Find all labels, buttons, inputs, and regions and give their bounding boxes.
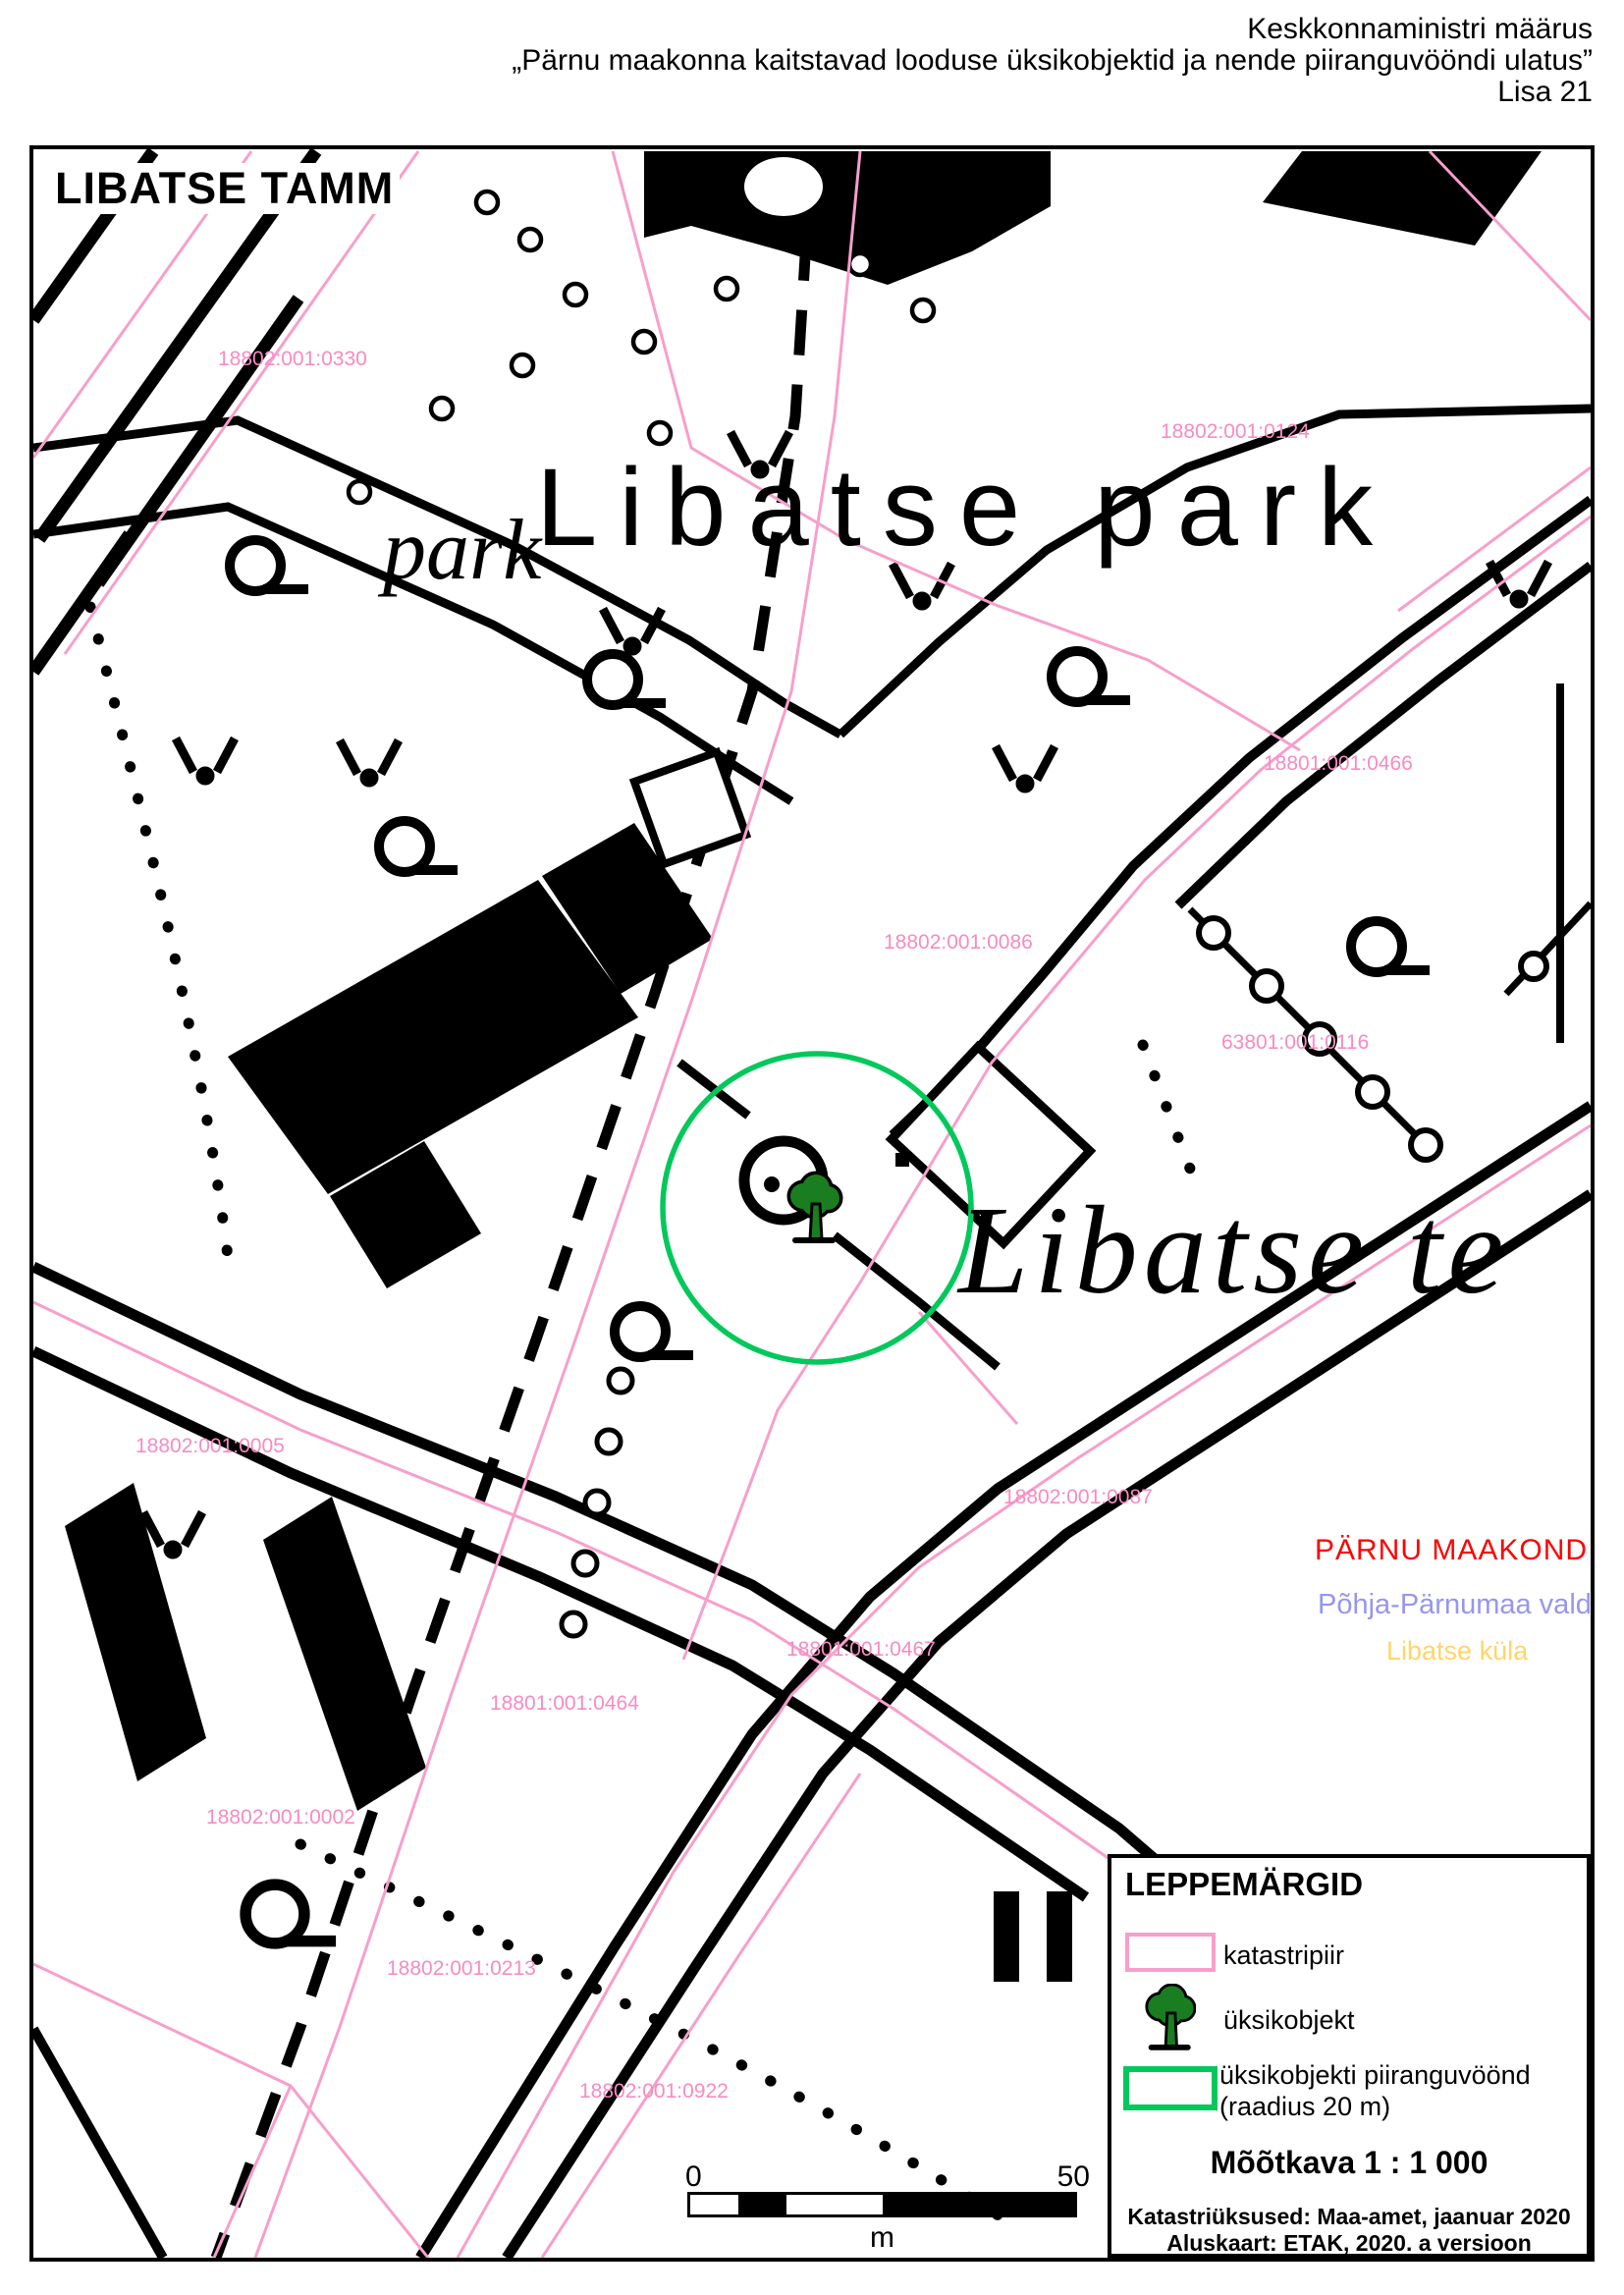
protection-zone-swatch <box>1123 2066 1218 2110</box>
header-line-1: Keskkonnaministri määrus <box>1247 14 1593 45</box>
county-label: PÄRNU MAAKOND <box>1315 1534 1588 1567</box>
scale-bar-unit: m <box>677 2221 1087 2255</box>
scale-bar-segments <box>687 2192 1077 2217</box>
legend-title: LEPPEMÄRGID <box>1125 1866 1363 1903</box>
legend-item-label: üksikobjekti piiranguvöönd <box>1219 2060 1531 2091</box>
cadastral-label: 63801:001:0116 <box>1221 1031 1369 1055</box>
cadastral-label: 18802:001:0086 <box>884 931 1033 955</box>
cadastral-label: 18802:001:0124 <box>1161 420 1310 444</box>
legend-item-label: üksikobjekt <box>1223 2005 1355 2036</box>
page: Keskkonnaministri määrus „Pärnu maakonna… <box>0 0 1624 2295</box>
protection-zone-group <box>663 1054 971 1362</box>
cadastral-label: 18802:001:0330 <box>218 348 367 371</box>
municipality-label: Põhja-Pärnumaa vald <box>1318 1589 1592 1621</box>
header-line-3: Lisa 21 <box>1497 77 1593 108</box>
street-label: Libatse te <box>958 1178 1509 1323</box>
map-scale-text: Mõõtkava 1 : 1 000 <box>1111 2145 1587 2181</box>
scale-bar-start: 0 <box>685 2160 702 2194</box>
protected-tree-icon <box>790 1175 839 1240</box>
cadastral-label: 18802:001:0087 <box>1003 1486 1153 1509</box>
park-small-label: park <box>383 501 541 600</box>
park-large-label: Libatse park <box>536 444 1394 571</box>
village-label: Libatse küla <box>1386 1636 1528 1667</box>
header-line-2: „Pärnu maakonna kaitstavad looduse üksik… <box>512 45 1593 77</box>
map-frame: LIBATSE TAMM park Libatse park Libatse t… <box>29 145 1595 2262</box>
legend-item-label: (raadius 20 m) <box>1219 2092 1390 2122</box>
scale-bar-end: 50 <box>1057 2160 1090 2194</box>
source-line-2: Aluskaart: ETAK, 2020. a versioon <box>1111 2230 1587 2257</box>
cadastral-label: 18802:001:0005 <box>135 1435 285 1458</box>
map-title: LIBATSE TAMM <box>49 163 400 214</box>
cadastral-label: 18801:001:0466 <box>1264 752 1413 776</box>
cadastral-label: 18801:001:0467 <box>786 1638 936 1662</box>
legend-item-label: katastripiir <box>1223 1940 1344 1971</box>
scale-bar: 0 50 m <box>677 2160 1090 2249</box>
cadastral-boundary-swatch <box>1125 1933 1216 1972</box>
tree-icon <box>1145 1984 1196 2050</box>
cadastral-label: 18802:001:0002 <box>206 1806 355 1830</box>
cadastral-label: 18802:001:0213 <box>387 1957 536 1981</box>
source-line-1: Katastriüksused: Maa-amet, jaanuar 2020 <box>1111 2204 1587 2230</box>
cadastral-label: 18801:001:0464 <box>490 1692 639 1716</box>
legend-box: LEPPEMÄRGID katastripiir üksiko <box>1108 1854 1591 2258</box>
cadastral-label: 18802:001:0922 <box>579 2080 729 2104</box>
